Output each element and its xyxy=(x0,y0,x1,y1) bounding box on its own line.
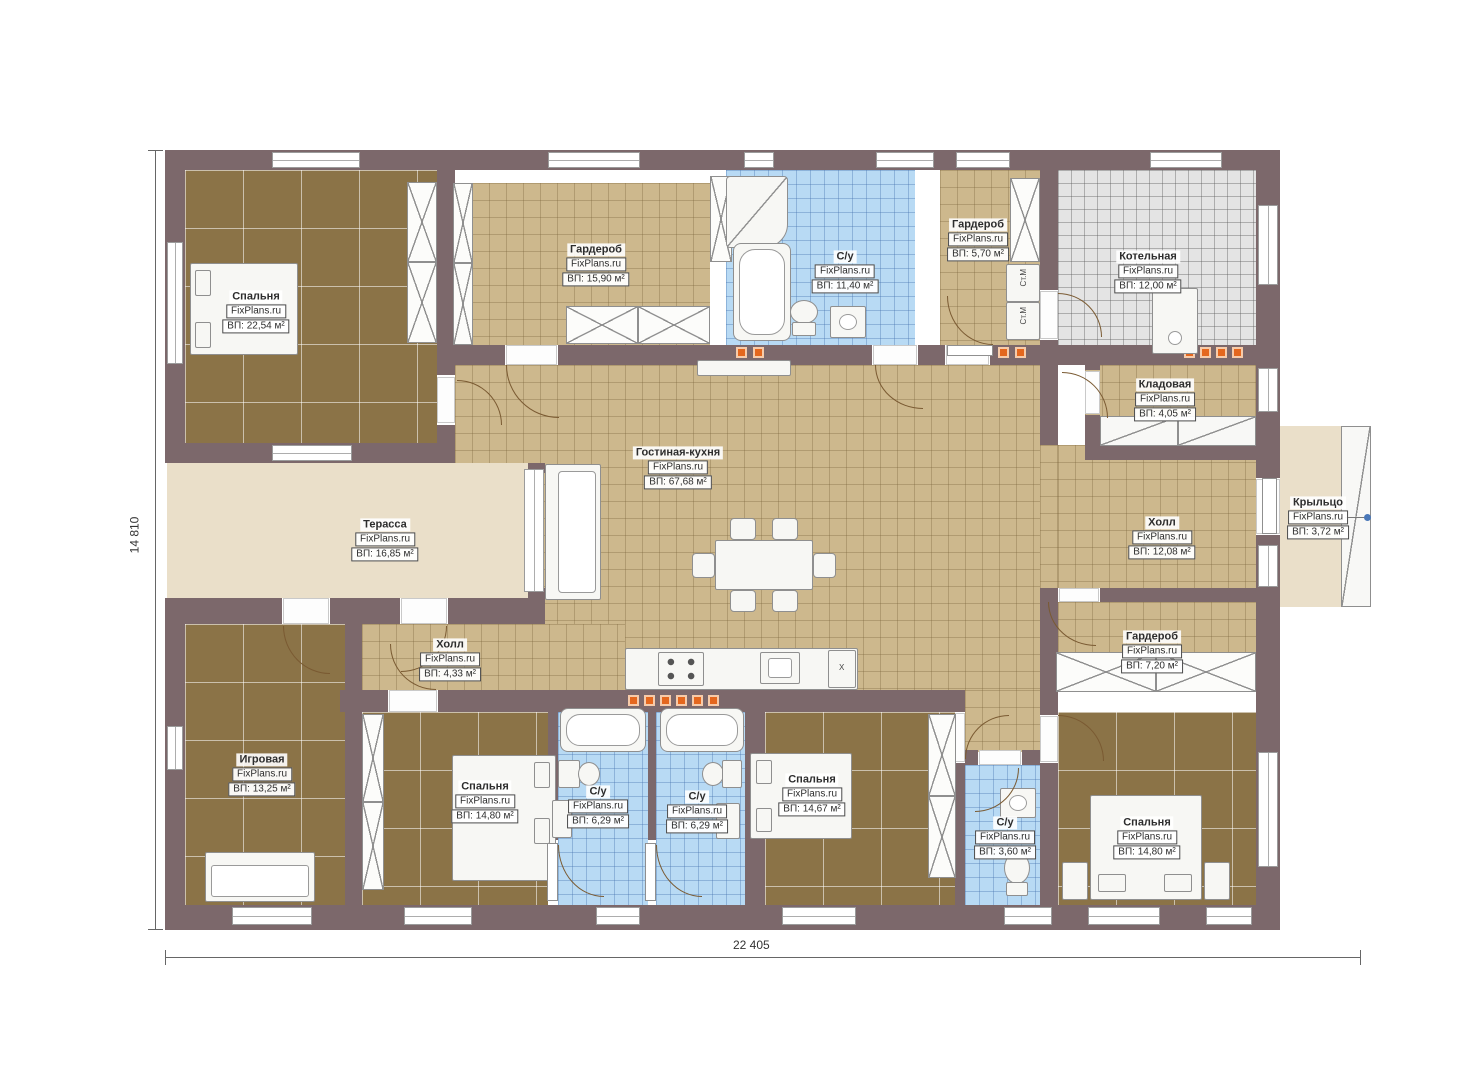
toilet-tank xyxy=(792,322,816,336)
room-label-wardrobe-1: Гардероб FixPlans.ru ВП: 15,90 м² xyxy=(562,243,629,286)
wall xyxy=(1022,750,1040,765)
floor-terrace xyxy=(167,463,528,598)
pillow xyxy=(756,808,772,832)
wall xyxy=(1040,340,1058,365)
washing-machine-label: Ст.М xyxy=(1019,307,1028,324)
boiler xyxy=(1152,288,1198,354)
kitchen-sink xyxy=(760,652,800,684)
wall xyxy=(1256,150,1280,478)
door-leaf xyxy=(947,345,993,356)
window xyxy=(167,726,183,770)
pillow xyxy=(534,818,550,844)
room-label-storage: Кладовая FixPlans.ru ВП: 4,05 м² xyxy=(1134,378,1196,421)
door-opening xyxy=(873,345,917,365)
window xyxy=(167,242,183,364)
sink xyxy=(830,306,866,338)
wardrobe xyxy=(407,262,437,343)
bathtub xyxy=(733,243,791,341)
wardrobe xyxy=(453,263,473,345)
vent xyxy=(676,695,687,706)
dimension-line-height xyxy=(155,150,156,930)
chair xyxy=(813,553,836,578)
dimension-tick xyxy=(165,950,166,965)
wall xyxy=(918,345,945,365)
wall xyxy=(345,620,362,905)
toilet xyxy=(722,760,742,788)
window xyxy=(232,907,312,925)
dimension-tick xyxy=(1360,950,1361,965)
fridge: Х xyxy=(828,650,856,688)
pillow xyxy=(534,762,550,788)
window xyxy=(1004,907,1052,925)
room-label-boiler-room: Котельная FixPlans.ru ВП: 12,00 м² xyxy=(1114,250,1181,293)
shower xyxy=(726,176,788,248)
room-label-bedroom-1: Спальня FixPlans.ru ВП: 22,54 м² xyxy=(222,290,289,333)
wardrobe xyxy=(1010,178,1040,262)
wall xyxy=(1085,365,1100,370)
window xyxy=(956,152,1010,168)
window xyxy=(1258,368,1278,412)
vent xyxy=(628,695,639,706)
vent xyxy=(1216,347,1227,358)
door-opening xyxy=(401,598,447,624)
door-opening xyxy=(1040,291,1058,339)
wall xyxy=(1256,535,1280,930)
wall xyxy=(165,598,282,624)
door-opening xyxy=(1040,716,1058,762)
wardrobe xyxy=(638,306,710,344)
dimension-line-width xyxy=(165,957,1361,958)
window xyxy=(404,907,472,925)
window xyxy=(782,907,856,925)
room-label-bath-2: С/у FixPlans.ru ВП: 6,29 м² xyxy=(567,785,629,828)
vent xyxy=(736,347,747,358)
chair xyxy=(730,518,756,540)
washing-machine: Ст.М xyxy=(1006,264,1040,302)
room-label-bath-1: С/у FixPlans.ru ВП: 11,40 м² xyxy=(812,250,879,293)
vent xyxy=(708,695,719,706)
room-label-porch: Крыльцо FixPlans.ru ВП: 3,72 м² xyxy=(1287,496,1349,539)
washing-machine: Ст.М xyxy=(1006,302,1040,340)
window xyxy=(272,152,360,168)
toilet xyxy=(558,760,580,788)
wall xyxy=(1040,365,1058,445)
leader-dot xyxy=(1364,514,1371,521)
room-label-hall-main: Холл FixPlans.ru ВП: 12,08 м² xyxy=(1128,516,1195,559)
dimension-tick xyxy=(148,929,163,930)
tv-stand xyxy=(697,360,791,376)
door-leaf xyxy=(645,843,656,901)
window-terrace-glazing xyxy=(524,469,544,592)
bathtub xyxy=(560,708,646,752)
wardrobe xyxy=(362,714,384,802)
wardrobe xyxy=(928,714,956,796)
door-opening xyxy=(389,690,437,712)
room-label-hall-small: Холл FixPlans.ru ВП: 4,33 м² xyxy=(419,638,481,681)
wall xyxy=(955,763,965,905)
pillow xyxy=(756,760,772,784)
wardrobe xyxy=(928,796,956,878)
window xyxy=(1206,907,1252,925)
floor-hall-strip xyxy=(1040,445,1058,588)
room-label-wardrobe-3: Гардероб FixPlans.ru ВП: 7,20 м² xyxy=(1121,630,1183,673)
window xyxy=(548,152,640,168)
wall xyxy=(1085,415,1100,445)
vent xyxy=(1232,347,1243,358)
pillow xyxy=(1164,874,1192,892)
room-label-bedroom-3: Спальня FixPlans.ru ВП: 14,67 м² xyxy=(778,773,845,816)
chair xyxy=(772,518,798,540)
pillow xyxy=(1098,874,1126,892)
vent xyxy=(753,347,764,358)
door-opening xyxy=(437,377,455,423)
sofa xyxy=(545,464,601,600)
wall xyxy=(455,345,505,365)
wall xyxy=(1040,763,1058,905)
window xyxy=(1258,752,1278,867)
window xyxy=(876,152,934,168)
wall xyxy=(330,598,400,624)
window xyxy=(596,907,640,925)
window xyxy=(272,445,352,461)
toilet-bowl xyxy=(702,762,724,786)
vent xyxy=(692,695,703,706)
room-label-bath-4: С/у FixPlans.ru ВП: 3,60 м² xyxy=(974,816,1036,859)
room-label-living-kitchen: Гостиная-кухня FixPlans.ru ВП: 67,68 м² xyxy=(633,446,723,489)
room-label-terrace: Терасса FixPlans.ru ВП: 16,85 м² xyxy=(351,518,418,561)
stove xyxy=(658,652,704,686)
nightstand xyxy=(1204,862,1230,900)
nightstand xyxy=(1062,862,1088,900)
pillow xyxy=(195,322,211,348)
wall xyxy=(648,712,656,840)
wall xyxy=(1100,588,1256,602)
room-label-bedroom-4: Спальня FixPlans.ru ВП: 14,80 м² xyxy=(1113,816,1180,859)
door-opening xyxy=(283,598,329,624)
dining-table xyxy=(715,540,813,590)
wall xyxy=(448,598,545,624)
chair xyxy=(772,590,798,612)
window xyxy=(744,152,774,168)
dimension-label-height: 14 810 xyxy=(127,514,141,557)
vent xyxy=(998,347,1009,358)
chair xyxy=(692,553,715,578)
vent xyxy=(660,695,671,706)
window xyxy=(1088,907,1160,925)
room-label-bedroom-2: Спальня FixPlans.ru ВП: 14,80 м² xyxy=(451,780,518,823)
door-opening xyxy=(506,345,557,365)
floor-plan: Х Ст.М Ст.М xyxy=(0,0,1474,1080)
room-label-playroom: Игровая FixPlans.ru ВП: 13,25 м² xyxy=(228,753,295,796)
room-label-bath-3: С/у FixPlans.ru ВП: 6,29 м² xyxy=(666,790,728,833)
wardrobe xyxy=(362,802,384,890)
window xyxy=(1258,545,1278,587)
dimension-label-width: 22 405 xyxy=(730,938,773,952)
wardrobe xyxy=(453,183,473,263)
door-leaf xyxy=(547,843,558,901)
room-label-wardrobe-2: Гардероб FixPlans.ru ВП: 5,70 м² xyxy=(947,218,1009,261)
wardrobe xyxy=(407,182,437,262)
door-leaf xyxy=(1262,478,1277,534)
wall xyxy=(1040,170,1058,290)
toilet xyxy=(790,300,818,324)
pillow xyxy=(195,270,211,296)
chair xyxy=(730,590,756,612)
window xyxy=(1150,152,1222,168)
sofa xyxy=(205,852,315,902)
wardrobe xyxy=(566,306,638,344)
window xyxy=(1258,205,1278,285)
fridge-label: Х xyxy=(839,663,844,672)
vent xyxy=(1015,347,1026,358)
toilet xyxy=(1006,882,1028,896)
vent xyxy=(644,695,655,706)
door-opening xyxy=(955,713,965,762)
door-opening xyxy=(1059,588,1099,602)
vent xyxy=(1200,347,1211,358)
dimension-tick xyxy=(148,150,163,151)
washing-machine-label: Ст.М xyxy=(1019,269,1028,286)
wall xyxy=(1085,445,1256,460)
bathtub xyxy=(660,708,744,752)
toilet-bowl xyxy=(578,762,600,786)
